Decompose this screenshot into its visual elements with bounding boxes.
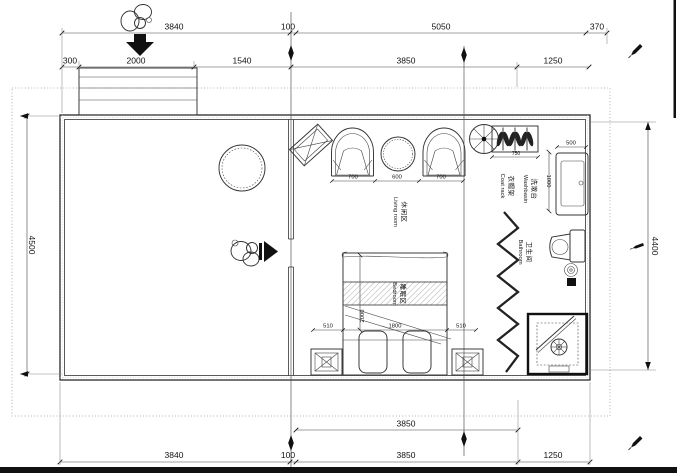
dim-text: 370 xyxy=(590,22,604,32)
svg-text:衣帽架: 衣帽架 xyxy=(507,176,516,197)
svg-text:Bathroom: Bathroom xyxy=(517,239,523,264)
pen-marker-icon xyxy=(627,44,642,59)
coffee-table xyxy=(381,137,415,171)
shower-stall xyxy=(528,314,587,374)
witness-lines xyxy=(60,28,607,465)
round-table-inner xyxy=(222,148,262,188)
bedside-table xyxy=(452,349,483,375)
bottom-dimension-row: 3840 100 3850 1250 xyxy=(58,450,593,464)
bed-dimension-row: 510 1800 510 xyxy=(311,324,478,332)
floor-plan-drawing: 3840 100 5050 370 300 2000 1540 3850 125… xyxy=(0,0,677,473)
top-dimension-row-2: 300 2000 1540 3850 1250 xyxy=(60,56,592,70)
building-walls xyxy=(60,115,590,380)
door-person-icon xyxy=(231,240,259,266)
folding-partition xyxy=(498,212,518,372)
bathroom: 卫生间 Bathroom xyxy=(498,212,587,374)
dim-text: 3850 xyxy=(397,56,416,66)
dim-text: 600 xyxy=(392,175,402,181)
shower-door xyxy=(536,316,574,350)
living-dimension-row: 700 600 700 xyxy=(330,175,465,183)
dim-text: 100 xyxy=(281,22,295,32)
arrow-up-icon xyxy=(645,122,651,130)
armchair xyxy=(423,128,465,176)
washbasin-dim-width: 500 xyxy=(555,141,588,149)
arrow-left-icon xyxy=(20,113,28,119)
bed xyxy=(342,252,451,375)
dim-text: 1800 xyxy=(389,324,402,330)
right-dimension: 4400 xyxy=(590,122,660,370)
dim-text: 5050 xyxy=(432,22,451,32)
floor-drain-icon xyxy=(565,264,578,277)
left-dimension: 4500 xyxy=(20,113,62,377)
coffee-table-inner xyxy=(384,140,413,169)
entry-arrow-icon xyxy=(126,34,154,56)
svg-text:Bedroom: Bedroom xyxy=(391,282,397,306)
toilet xyxy=(550,230,585,286)
dim-text: 3840 xyxy=(165,450,184,460)
dim-text: 3840 xyxy=(165,22,184,32)
grid-diamond-marker xyxy=(461,47,467,63)
coat-rack-label: 衣帽架 Coat rack xyxy=(499,174,516,199)
dim-text-vertical: 4400 xyxy=(650,237,660,256)
dim-text-vertical: 4500 xyxy=(27,236,37,255)
svg-text:洗漱台: 洗漱台 xyxy=(530,179,539,200)
svg-text:Washbasin: Washbasin xyxy=(522,175,528,203)
bottom-dimension-inner: 3850 xyxy=(294,419,521,433)
svg-text:Living room: Living room xyxy=(392,197,398,227)
washbasin-dim-depth: 1000 xyxy=(545,150,551,214)
drain-box-icon xyxy=(567,278,576,286)
dim-text: 3850 xyxy=(397,419,416,429)
pillow xyxy=(403,331,431,373)
floor-plan-canvas: 3840 100 5050 370 300 2000 1540 3850 125… xyxy=(0,0,677,473)
washbasin-label: 洗漱台 Washbasin xyxy=(522,175,539,203)
dim-text: 750 xyxy=(512,151,521,157)
grid-diamond-marker xyxy=(288,45,294,61)
arrow-left-icon xyxy=(20,371,28,377)
arrow-down-icon xyxy=(645,362,651,370)
dim-text-vertical: 2000 xyxy=(360,310,366,323)
svg-text:卫生间: 卫生间 xyxy=(525,242,534,263)
left-room xyxy=(219,145,278,266)
entry-steps xyxy=(79,68,197,115)
grid-diamond-marker xyxy=(288,435,294,451)
dim-text: 700 xyxy=(348,175,358,181)
pen-marker-icon xyxy=(627,436,642,451)
bathroom-label: 卫生间 Bathroom xyxy=(517,239,534,264)
dim-text: 700 xyxy=(436,175,446,181)
dim-text: 100 xyxy=(281,450,295,460)
tilted-side-table xyxy=(290,124,333,166)
svg-text:Coat rack: Coat rack xyxy=(499,174,505,199)
dim-text-vertical: 1000 xyxy=(545,175,551,188)
entry-person-icon xyxy=(121,5,152,32)
bedroom: 睡眠区 Bedroom 2000 510 1800 510 xyxy=(311,252,483,375)
dim-text: 2000 xyxy=(127,56,146,66)
pen-marker-icon xyxy=(629,243,643,251)
page-edge-right xyxy=(674,0,677,118)
bedside-table xyxy=(311,349,342,375)
hanger-icon xyxy=(519,128,534,151)
dim-text: 500 xyxy=(566,141,576,147)
faucet-icon xyxy=(579,181,583,185)
svg-text:睡眠区: 睡眠区 xyxy=(399,284,407,305)
grid-diamond-marker xyxy=(461,431,467,447)
dim-text: 1250 xyxy=(544,56,563,66)
dim-text: 3850 xyxy=(397,450,416,460)
hanger-icon xyxy=(507,128,522,151)
dim-text: 300 xyxy=(63,56,77,66)
shower-threshold xyxy=(549,366,569,372)
page-edge-bottom xyxy=(0,467,677,473)
armchair xyxy=(332,128,374,176)
ceiling-fan-icon xyxy=(470,125,499,154)
grid-lines xyxy=(288,12,467,468)
door-arrow-icon xyxy=(259,241,278,262)
hanger-icon xyxy=(495,128,510,151)
living-room-label: 休闲区 Living room xyxy=(392,197,409,227)
washbasin-bowl xyxy=(561,161,584,206)
round-table xyxy=(219,145,265,191)
svg-text:休闲区: 休闲区 xyxy=(400,202,409,223)
living-room: 700 600 700 休闲区 Living room xyxy=(290,124,499,227)
dim-text: 510 xyxy=(323,324,333,330)
dim-text: 1250 xyxy=(544,450,563,460)
dim-text: 1540 xyxy=(233,56,252,66)
pillow xyxy=(359,331,387,373)
dim-text: 510 xyxy=(456,324,466,330)
